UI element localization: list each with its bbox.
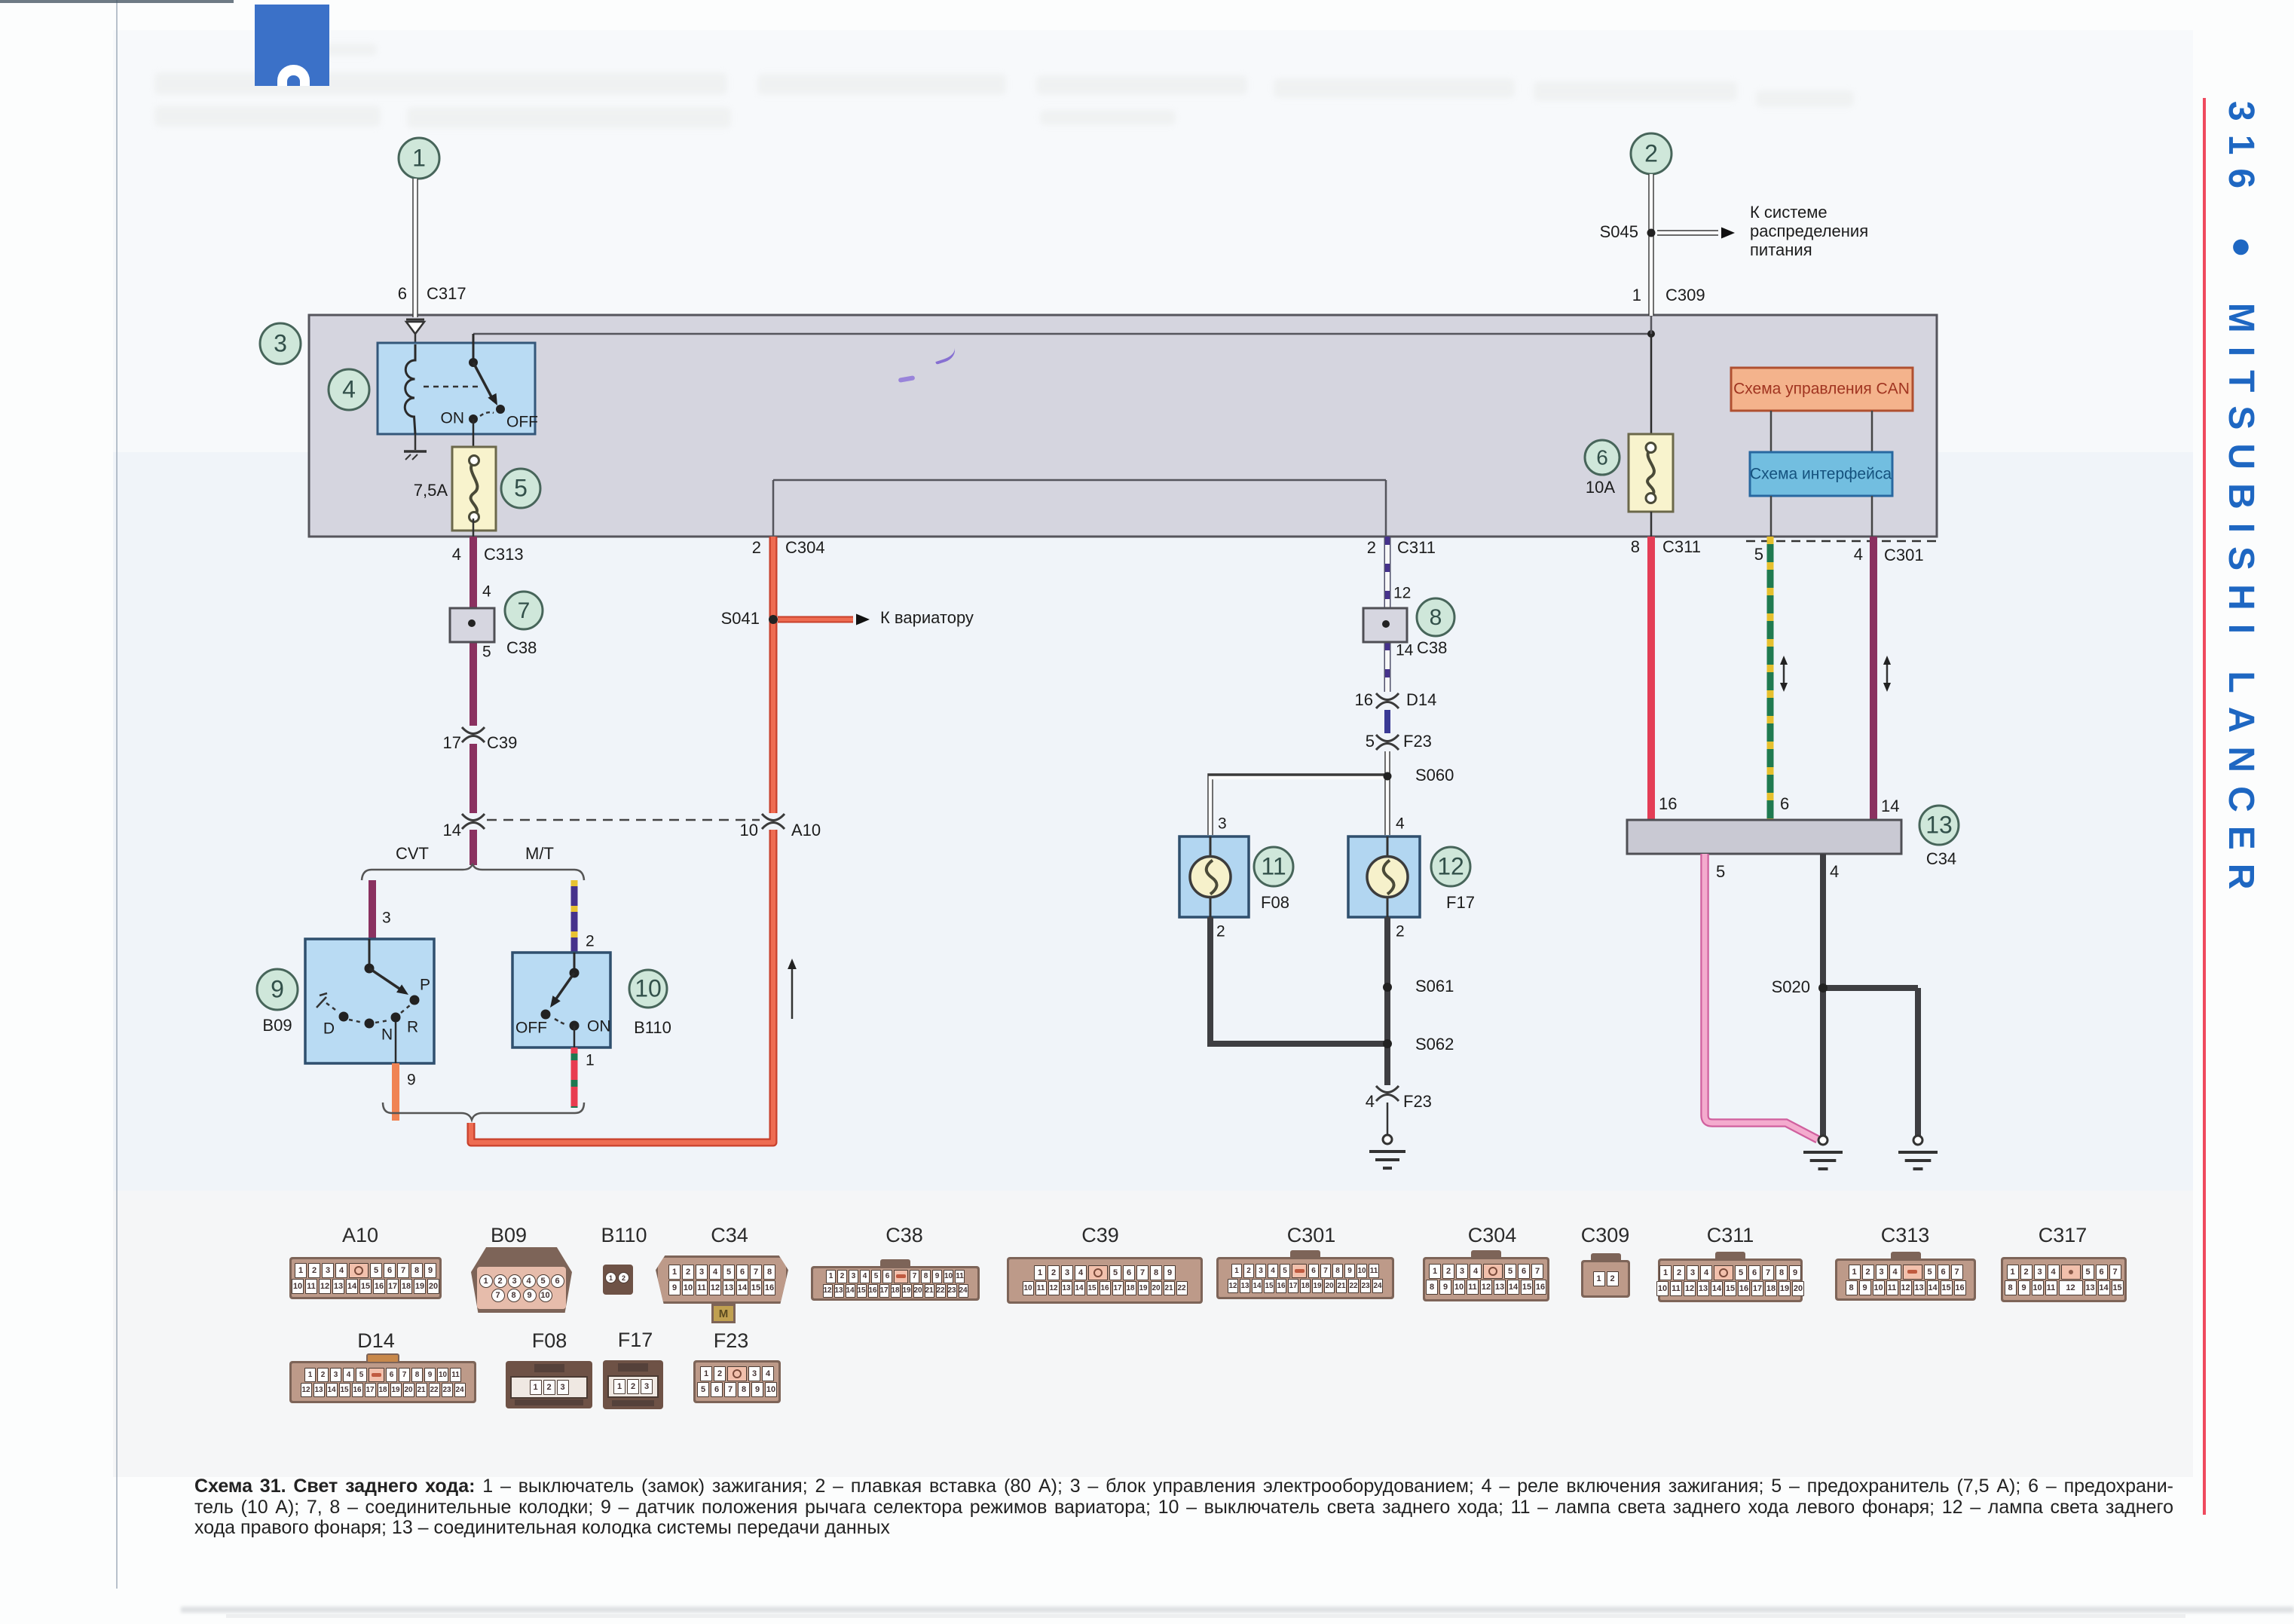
svg-text:5: 5 bbox=[514, 474, 528, 501]
svg-text:распределения: распределения bbox=[1750, 222, 1868, 240]
svg-text:CVT: CVT bbox=[396, 844, 429, 863]
svg-text:C317: C317 bbox=[427, 284, 466, 303]
svg-text:11: 11 bbox=[1261, 852, 1286, 879]
svg-text:C39: C39 bbox=[487, 733, 517, 752]
svg-text:C38: C38 bbox=[1417, 638, 1447, 657]
svg-text:2: 2 bbox=[1367, 538, 1376, 557]
svg-text:3: 3 bbox=[1218, 815, 1227, 833]
svg-text:8: 8 bbox=[1631, 537, 1640, 556]
svg-text:14: 14 bbox=[1396, 642, 1414, 659]
svg-text:16: 16 bbox=[1659, 794, 1677, 813]
svg-text:2: 2 bbox=[1644, 139, 1658, 167]
svg-text:4: 4 bbox=[1830, 862, 1839, 881]
svg-text:1: 1 bbox=[412, 144, 426, 171]
svg-text:R: R bbox=[407, 1019, 418, 1036]
svg-text:10: 10 bbox=[635, 974, 662, 1002]
svg-text:Схема интерфейса: Схема интерфейса bbox=[1750, 466, 1892, 483]
svg-text:B110: B110 bbox=[634, 1018, 671, 1037]
svg-text:C38: C38 bbox=[506, 638, 537, 657]
svg-text:14: 14 bbox=[1881, 797, 1899, 815]
svg-text:P: P bbox=[420, 977, 430, 994]
svg-text:3: 3 bbox=[382, 910, 391, 927]
svg-text:S020: S020 bbox=[1772, 977, 1810, 996]
svg-text:5: 5 bbox=[1716, 862, 1725, 881]
svg-text:F17: F17 bbox=[1446, 893, 1475, 912]
svg-text:5: 5 bbox=[1366, 732, 1375, 751]
svg-text:OFF: OFF bbox=[506, 414, 538, 431]
svg-text:2: 2 bbox=[586, 933, 595, 950]
svg-text:16: 16 bbox=[1355, 690, 1373, 709]
svg-text:9: 9 bbox=[407, 1072, 416, 1089]
svg-text:B09: B09 bbox=[262, 1016, 292, 1035]
svg-text:9: 9 bbox=[271, 975, 284, 1002]
svg-text:10A: 10A bbox=[1586, 478, 1615, 497]
svg-text:питания: питания bbox=[1750, 240, 1812, 259]
svg-text:M/T: M/T bbox=[525, 844, 554, 863]
svg-text:D: D bbox=[323, 1020, 335, 1038]
svg-text:К вариатору: К вариатору bbox=[880, 608, 974, 627]
svg-text:C311: C311 bbox=[1397, 538, 1436, 557]
svg-text:A10: A10 bbox=[791, 821, 821, 840]
svg-text:F23: F23 bbox=[1403, 1092, 1432, 1111]
svg-text:S045: S045 bbox=[1600, 222, 1638, 241]
svg-text:2: 2 bbox=[752, 538, 761, 557]
svg-text:2: 2 bbox=[1396, 923, 1405, 940]
svg-text:S060: S060 bbox=[1415, 766, 1454, 784]
svg-text:ON: ON bbox=[441, 410, 465, 427]
svg-text:S061: S061 bbox=[1415, 977, 1454, 996]
svg-text:6: 6 bbox=[1780, 794, 1789, 813]
svg-text:4: 4 bbox=[1854, 545, 1863, 564]
svg-text:C304: C304 bbox=[785, 538, 825, 557]
svg-text:D14: D14 bbox=[1406, 690, 1436, 709]
svg-text:C313: C313 bbox=[484, 545, 524, 564]
svg-text:4: 4 bbox=[1396, 815, 1405, 833]
svg-text:6: 6 bbox=[398, 284, 407, 303]
svg-text:1: 1 bbox=[1632, 286, 1641, 304]
svg-text:4: 4 bbox=[452, 545, 461, 564]
svg-text:3: 3 bbox=[274, 329, 287, 356]
svg-text:2: 2 bbox=[1216, 923, 1225, 940]
svg-text:10: 10 bbox=[740, 821, 758, 840]
svg-text:1: 1 bbox=[586, 1052, 595, 1069]
svg-text:C309: C309 bbox=[1665, 286, 1705, 304]
svg-text:ON: ON bbox=[587, 1018, 611, 1035]
svg-text:5: 5 bbox=[482, 644, 491, 661]
svg-text:17: 17 bbox=[443, 733, 461, 752]
svg-text:12: 12 bbox=[1393, 585, 1411, 602]
svg-text:C311: C311 bbox=[1662, 537, 1701, 556]
svg-text:6: 6 bbox=[1596, 445, 1608, 469]
svg-text:S041: S041 bbox=[721, 609, 760, 628]
svg-text:C34: C34 bbox=[1926, 849, 1956, 868]
svg-text:OFF: OFF bbox=[515, 1020, 547, 1037]
svg-text:F08: F08 bbox=[1261, 893, 1289, 912]
svg-text:К системе: К системе bbox=[1750, 203, 1828, 222]
svg-text:Схема управления CAN: Схема управления CAN bbox=[1733, 381, 1910, 398]
svg-text:C301: C301 bbox=[1884, 546, 1924, 564]
svg-text:14: 14 bbox=[443, 821, 461, 840]
svg-text:4: 4 bbox=[1366, 1092, 1375, 1111]
svg-text:4: 4 bbox=[342, 375, 356, 402]
svg-text:7,5A: 7,5A bbox=[414, 481, 448, 500]
svg-text:4: 4 bbox=[482, 583, 491, 601]
svg-text:12: 12 bbox=[1437, 852, 1464, 879]
svg-text:5: 5 bbox=[1754, 545, 1763, 564]
svg-text:13: 13 bbox=[1925, 811, 1953, 838]
svg-text:F23: F23 bbox=[1403, 732, 1432, 751]
svg-text:8: 8 bbox=[1430, 605, 1442, 630]
svg-text:N: N bbox=[381, 1026, 393, 1044]
svg-text:S062: S062 bbox=[1415, 1035, 1454, 1054]
svg-text:7: 7 bbox=[518, 598, 531, 623]
